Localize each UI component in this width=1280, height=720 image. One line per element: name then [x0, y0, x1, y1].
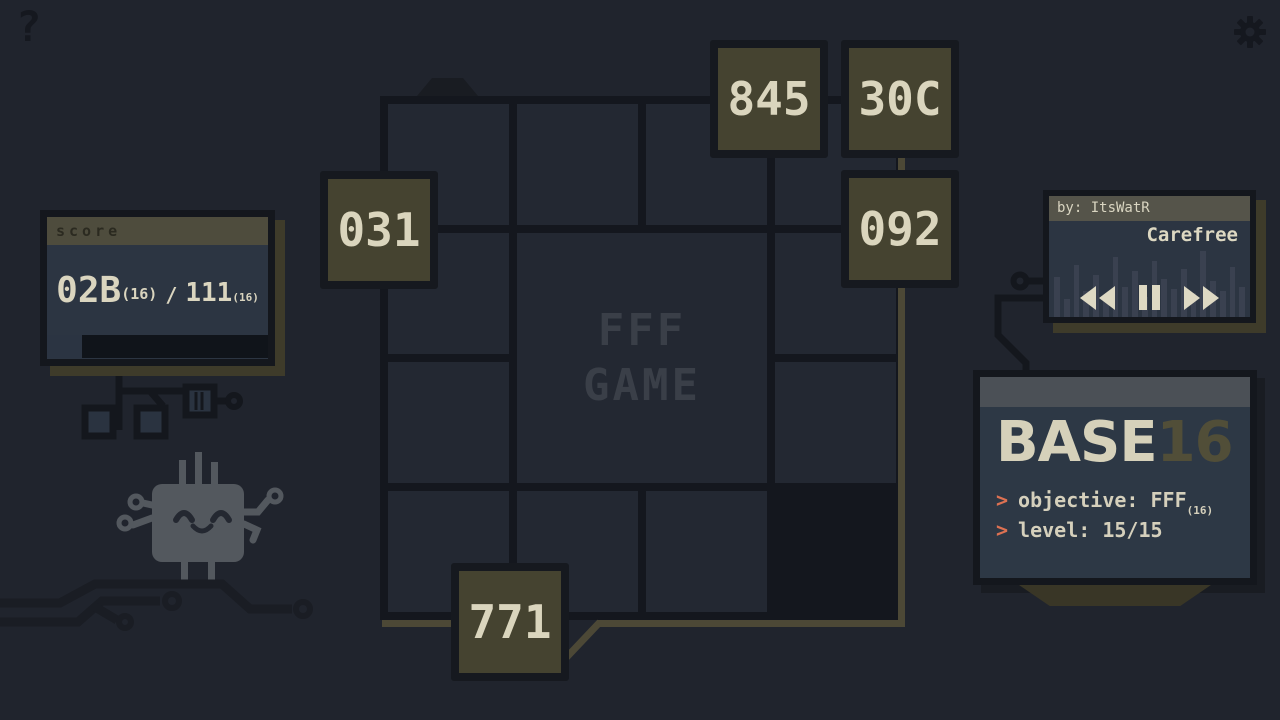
track-name: Carefree: [1146, 224, 1238, 246]
game-title-main: BASE: [996, 410, 1157, 475]
info-panel-base-tab: [1019, 585, 1211, 606]
fast-forward-icon[interactable]: [1184, 286, 1219, 310]
objective-text: objective: FFF: [1018, 488, 1187, 512]
watermark-line: GAME: [583, 358, 701, 413]
prompt-chevron: >: [996, 518, 1008, 542]
tile[interactable]: 771: [451, 563, 569, 681]
score-target-base: (16): [232, 291, 259, 304]
board-cell: [775, 362, 896, 483]
score-target: 111: [185, 278, 232, 308]
board-top-notch: [417, 78, 478, 96]
game-screen: ? FFF GAME: [0, 0, 1280, 720]
info-panel-header: [980, 377, 1250, 407]
score-progress-track: [47, 335, 268, 358]
score-circuit-chips: [85, 387, 214, 436]
game-title-accent: 16: [1157, 410, 1233, 475]
tile[interactable]: 092: [841, 170, 959, 288]
game-title: BASE16: [996, 411, 1234, 475]
chip-face: [176, 513, 229, 531]
watermark-line: FFF: [598, 303, 686, 358]
gear-icon[interactable]: [1232, 14, 1268, 50]
pause-icon[interactable]: [1139, 285, 1160, 310]
game-board: FFF GAME: [380, 96, 904, 620]
music-player: by: ItsWatR Carefree: [1043, 190, 1256, 323]
rewind-icon[interactable]: [1080, 286, 1115, 310]
info-panel-body: BASE16 >objective: FFF(16) >level: 15/15: [980, 407, 1250, 543]
objective-base: (16): [1187, 504, 1214, 517]
tile[interactable]: 845: [710, 40, 828, 158]
board-cell: [388, 362, 509, 483]
tile[interactable]: 30C: [841, 40, 959, 158]
score-circuit: [100, 363, 240, 430]
info-panel: BASE16 >objective: FFF(16) >level: 15/15: [973, 370, 1257, 585]
board-center-watermark: FFF GAME: [517, 233, 767, 483]
board-cell: [517, 104, 638, 225]
prompt-chevron: >: [996, 488, 1008, 512]
music-author: by: ItsWatR: [1049, 196, 1250, 221]
score-panel: score 02B(16) / 111(16): [40, 210, 275, 366]
help-icon[interactable]: ?: [16, 2, 41, 51]
player-circuit: [998, 275, 1046, 381]
music-player-body: Carefree: [1049, 221, 1250, 317]
chip-character: [119, 452, 281, 580]
level-line: >level: 15/15: [996, 517, 1234, 543]
score-current: 02B: [56, 270, 121, 311]
level-text: level: 15/15: [1018, 518, 1163, 542]
score-separator: /: [165, 283, 177, 307]
objective-line: >objective: FFF(16): [996, 487, 1234, 517]
score-display: 02B(16) / 111(16): [47, 245, 268, 335]
tile[interactable]: 031: [320, 171, 438, 289]
player-controls: [1049, 285, 1250, 310]
bottom-traces: [0, 584, 310, 628]
score-current-base: (16): [121, 285, 157, 303]
board-cell: [646, 491, 767, 612]
score-progress-fill: [47, 335, 82, 358]
score-panel-title: score: [47, 217, 268, 245]
